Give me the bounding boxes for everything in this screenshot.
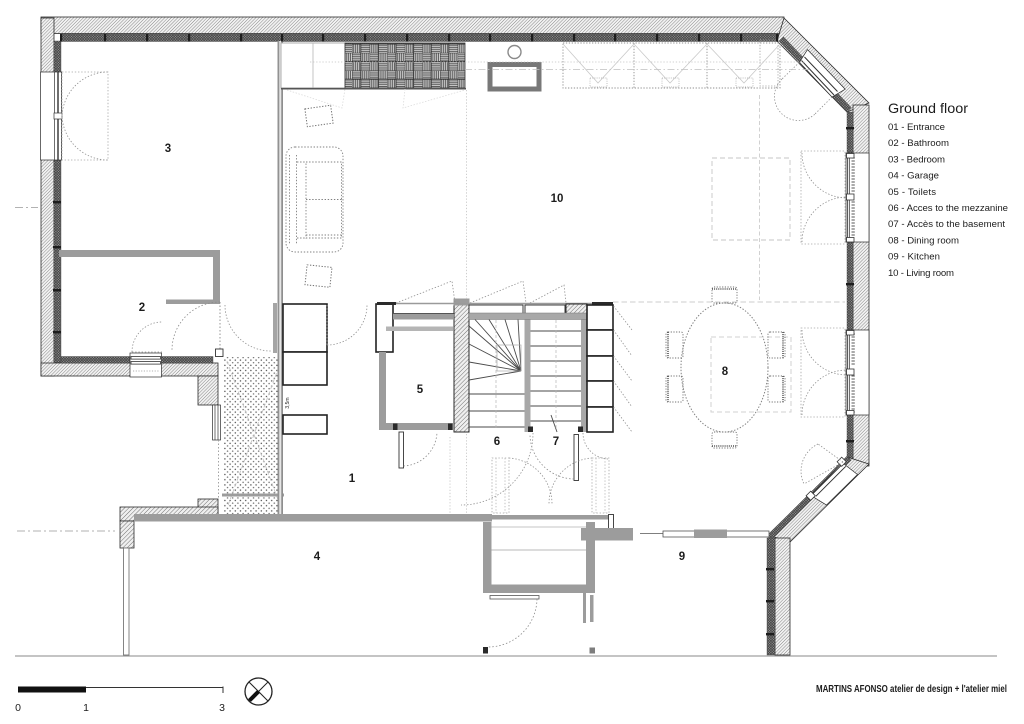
svg-text:08 - Dining room: 08 - Dining room (888, 235, 959, 246)
svg-text:01 - Entrance: 01 - Entrance (888, 122, 945, 133)
svg-text:10: 10 (551, 193, 564, 205)
svg-text:1: 1 (349, 473, 356, 485)
svg-text:02 - Bathroom: 02 - Bathroom (888, 138, 949, 149)
svg-text:Ground floor: Ground floor (888, 100, 968, 116)
svg-text:4: 4 (314, 551, 321, 563)
svg-text:5: 5 (417, 384, 424, 396)
svg-text:9: 9 (679, 551, 685, 563)
svg-text:09 - Kitchen: 09 - Kitchen (888, 252, 940, 263)
svg-text:06 - Acces to the mezzanine: 06 - Acces to the mezzanine (888, 203, 1008, 214)
svg-text:6: 6 (494, 436, 500, 448)
svg-text:1: 1 (83, 702, 89, 714)
svg-text:04 - Garage: 04 - Garage (888, 171, 939, 182)
svg-text:10 - Living room: 10 - Living room (888, 268, 954, 279)
svg-text:2: 2 (139, 302, 145, 314)
svg-text:7: 7 (553, 436, 559, 448)
svg-text:05 - Toilets: 05 - Toilets (888, 187, 936, 198)
svg-text:3: 3 (219, 702, 225, 714)
svg-text:07 - Accès to the basement: 07 - Accès to the basement (888, 219, 1005, 230)
svg-text:8: 8 (722, 366, 729, 378)
svg-text:3,5m: 3,5m (285, 397, 291, 408)
svg-text:MARTINS AFONSO atelier de desi: MARTINS AFONSO atelier de design + l'ate… (816, 683, 1007, 695)
svg-text:0: 0 (15, 702, 21, 714)
svg-text:03 - Bedroom: 03 - Bedroom (888, 154, 945, 165)
svg-text:3: 3 (165, 143, 171, 155)
